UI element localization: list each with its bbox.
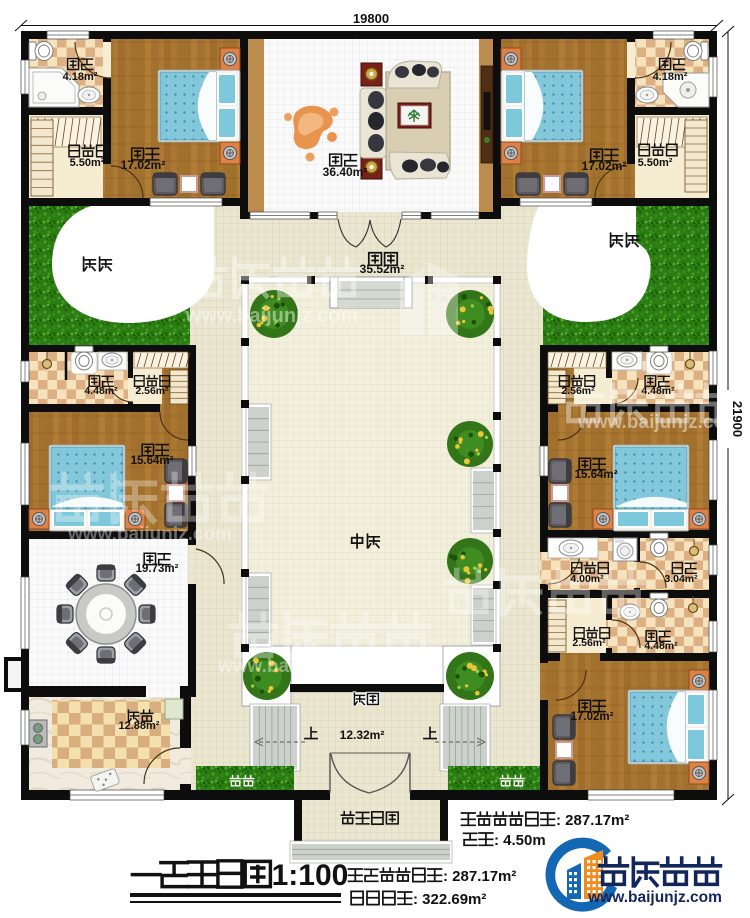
- svg-text:1:100: 1:100: [272, 859, 349, 892]
- svg-text:21900: 21900: [730, 401, 745, 437]
- svg-text:15.64m²: 15.64m²: [575, 469, 618, 481]
- svg-text:www.baijunjz.com: www.baijunjz.com: [587, 889, 722, 906]
- svg-text:www.baijunjz.com: www.baijunjz.com: [217, 656, 382, 677]
- svg-text:15.64m²: 15.64m²: [131, 455, 174, 467]
- svg-text:2.56m²: 2.56m²: [572, 637, 606, 649]
- svg-text:35.52m²: 35.52m²: [360, 262, 405, 276]
- svg-text:19.73m²: 19.73m²: [136, 563, 179, 575]
- svg-text:12.88m²: 12.88m²: [119, 720, 160, 732]
- svg-text:5.50m²: 5.50m²: [638, 157, 673, 169]
- svg-text:4.00m²: 4.00m²: [570, 573, 604, 585]
- svg-text:4.48m²: 4.48m²: [641, 385, 675, 397]
- svg-text:: 322.69m²: : 322.69m²: [413, 891, 486, 908]
- svg-text:4.18m²: 4.18m²: [653, 71, 688, 83]
- svg-text:17.02m²: 17.02m²: [121, 158, 166, 172]
- svg-text:2.56m²: 2.56m²: [135, 385, 169, 397]
- svg-text:2.56m²: 2.56m²: [561, 385, 595, 397]
- svg-text:3.04m²: 3.04m²: [664, 573, 698, 585]
- svg-text:5.50m²: 5.50m²: [70, 157, 105, 169]
- svg-text:4.48m²: 4.48m²: [644, 640, 678, 652]
- svg-text:17.02m²: 17.02m²: [582, 159, 627, 173]
- svg-text:12.32m²: 12.32m²: [340, 728, 385, 742]
- svg-text:19800: 19800: [353, 11, 389, 26]
- svg-text:4.18m²: 4.18m²: [63, 71, 98, 83]
- svg-text:www.baijunjz.com: www.baijunjz.com: [185, 305, 359, 327]
- svg-text:36.40m²: 36.40m²: [323, 165, 368, 179]
- svg-text:www.baijunjz.com: www.baijunjz.com: [67, 524, 232, 545]
- svg-text:: 287.17m²: : 287.17m²: [443, 868, 516, 885]
- svg-text:www.baijunjz.com: www.baijunjz.com: [577, 412, 742, 433]
- svg-text:4.48m²: 4.48m²: [84, 385, 118, 397]
- svg-text:: 4.50m: : 4.50m: [494, 832, 546, 849]
- svg-text:: 287.17m²: : 287.17m²: [556, 812, 629, 829]
- svg-text:17.02m²: 17.02m²: [571, 711, 614, 723]
